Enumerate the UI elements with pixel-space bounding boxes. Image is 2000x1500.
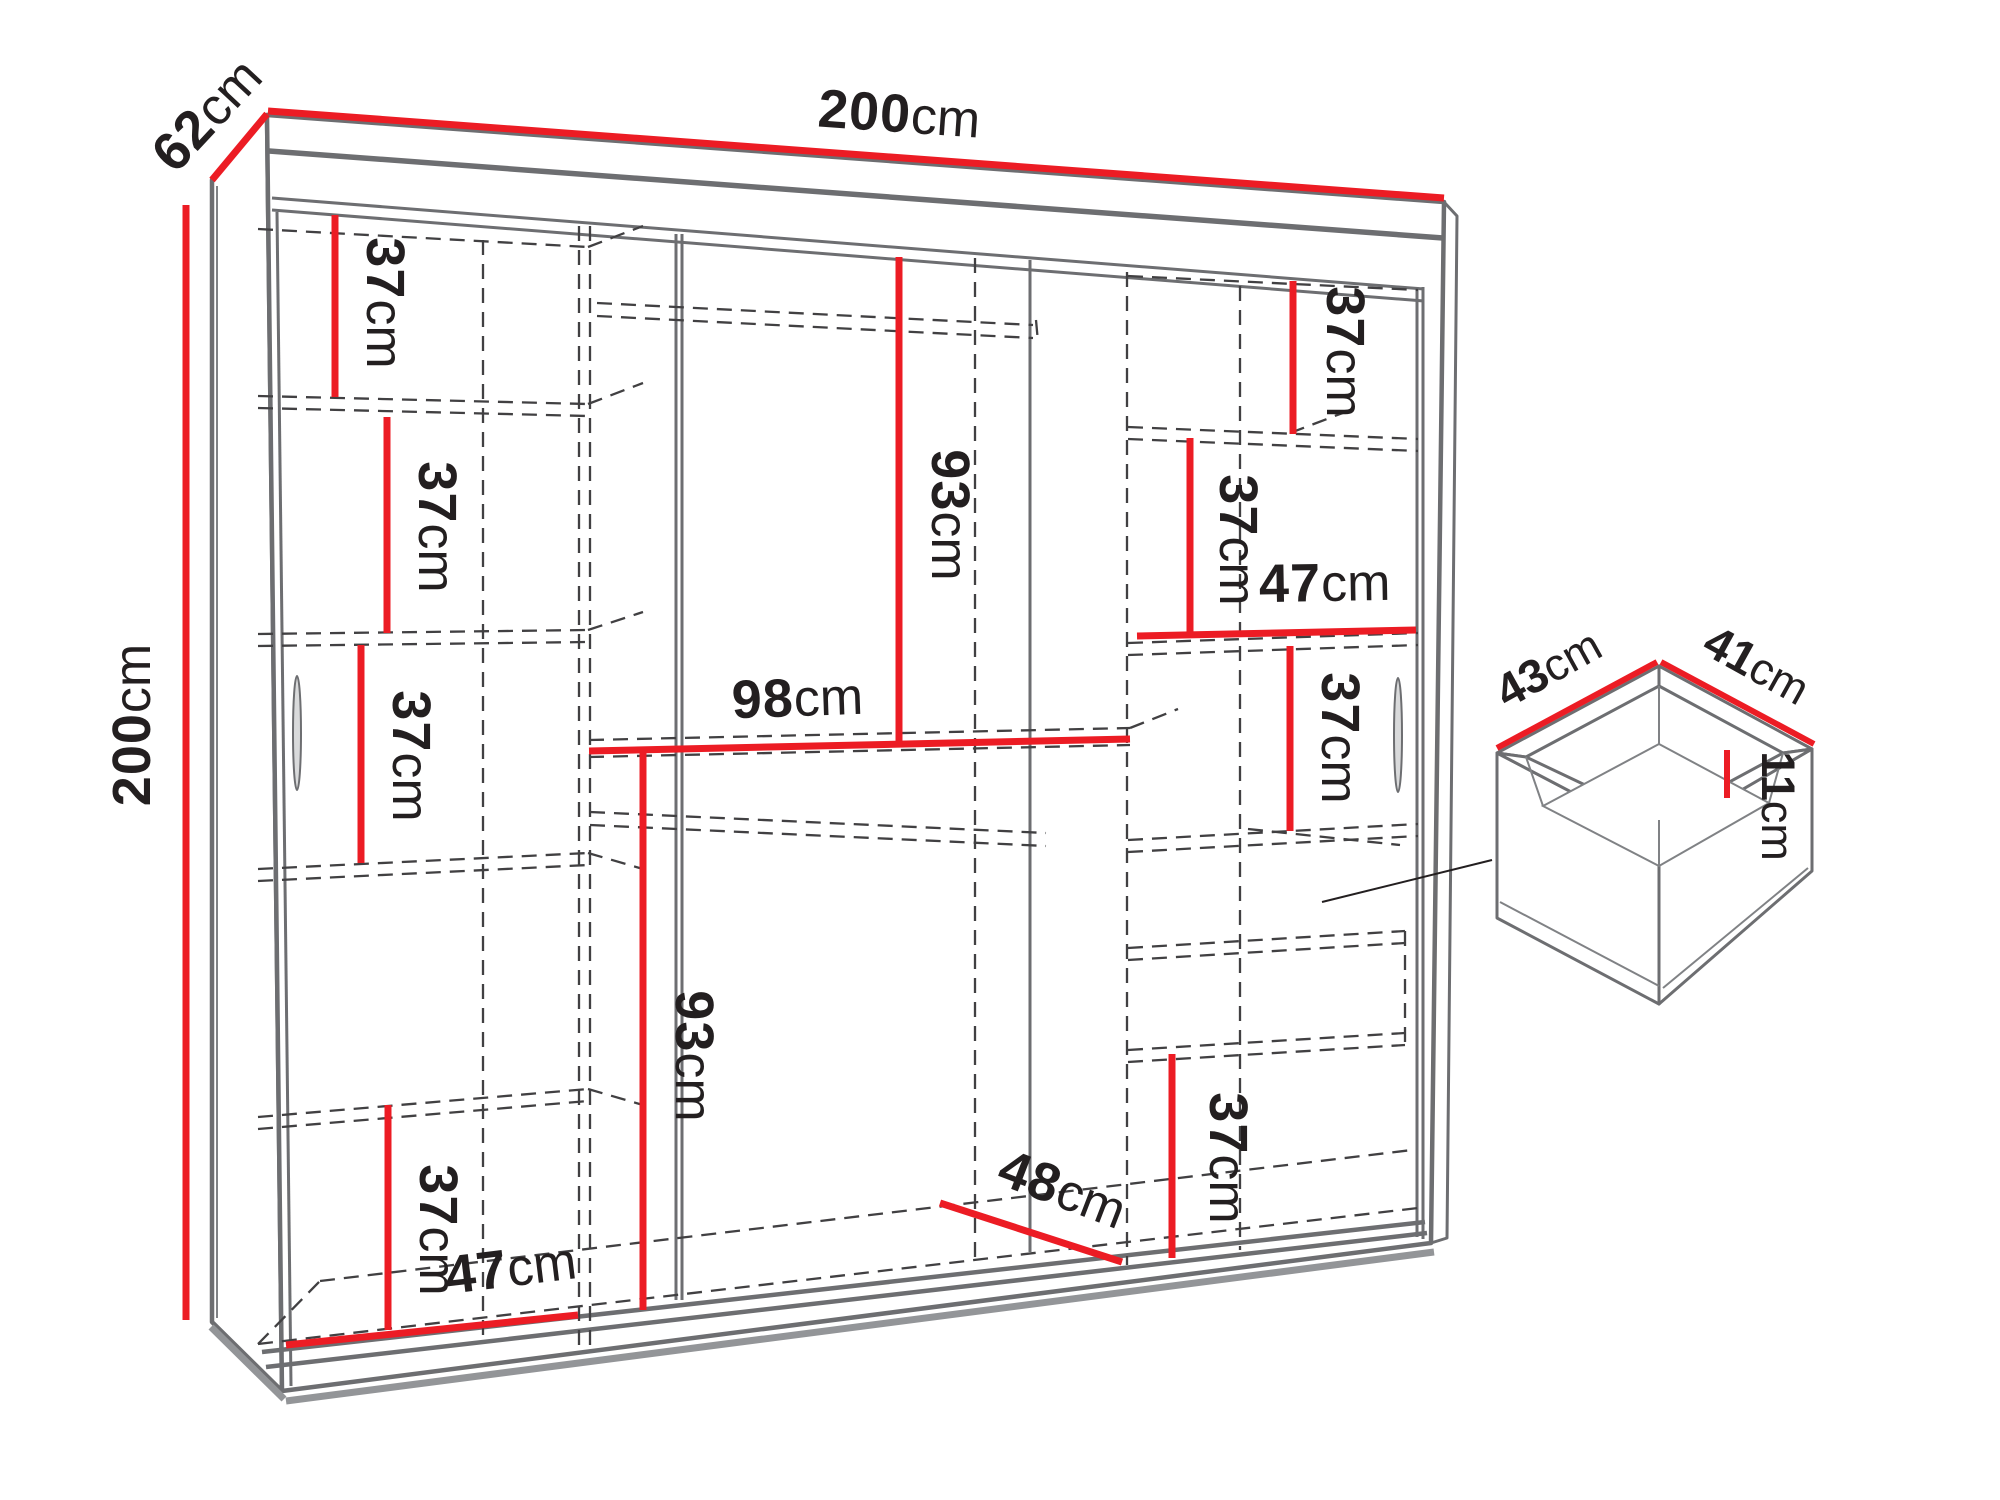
label-mid-shelf-width: 98cm bbox=[731, 666, 864, 731]
label-height-left: 200cm bbox=[102, 644, 162, 806]
label-right-shelf-width: 47cm bbox=[1258, 552, 1390, 614]
label-left-shelf2: 37cm bbox=[407, 461, 467, 592]
label-mid-upper-height: 93cm bbox=[920, 449, 980, 580]
label-drawer-height: 11cm bbox=[1752, 751, 1805, 861]
label-width-top: 200cm bbox=[816, 78, 982, 149]
wardrobe-dimension-diagram: 200cm 62cm 200cm 37cm 37cm 37cm 37cm 47c… bbox=[0, 0, 2000, 1500]
label-mid-lower-height: 93cm bbox=[664, 990, 724, 1121]
label-right-shelf4: 37cm bbox=[1198, 1092, 1258, 1223]
label-right-shelf3: 37cm bbox=[1310, 672, 1370, 803]
right-door-handle bbox=[1394, 678, 1402, 792]
label-left-shelf3: 37cm bbox=[381, 690, 441, 821]
label-left-shelf1: 37cm bbox=[355, 237, 415, 368]
diagram-svg: 200cm 62cm 200cm 37cm 37cm 37cm 37cm 47c… bbox=[0, 0, 2000, 1500]
label-right-shelf1: 37cm bbox=[1315, 286, 1375, 417]
left-door-handle bbox=[293, 676, 301, 790]
